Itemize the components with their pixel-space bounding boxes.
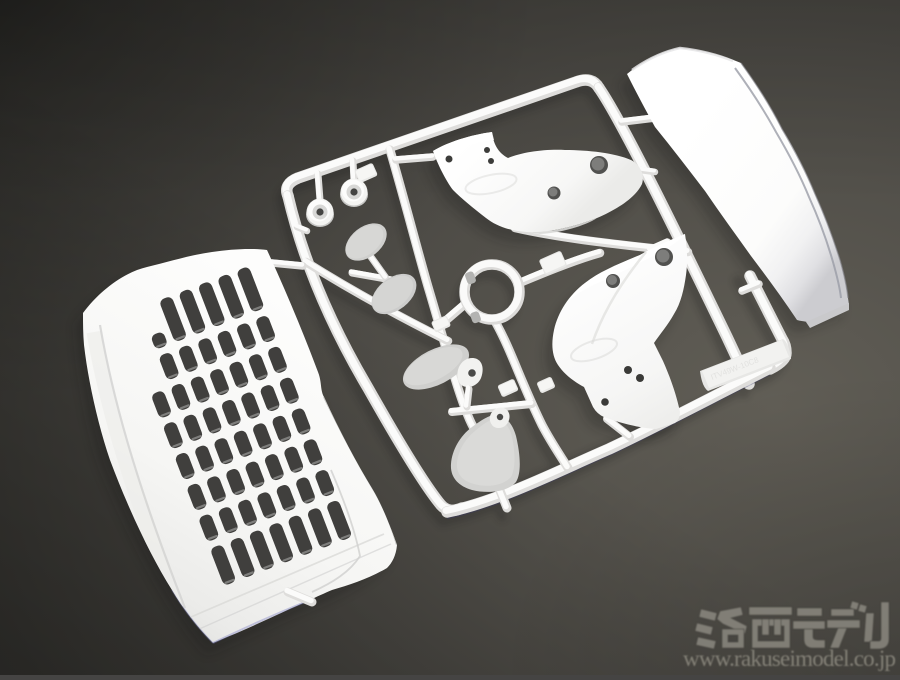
svg-text:www.rakuseimodel.co.jp: www.rakuseimodel.co.jp — [683, 646, 896, 671]
